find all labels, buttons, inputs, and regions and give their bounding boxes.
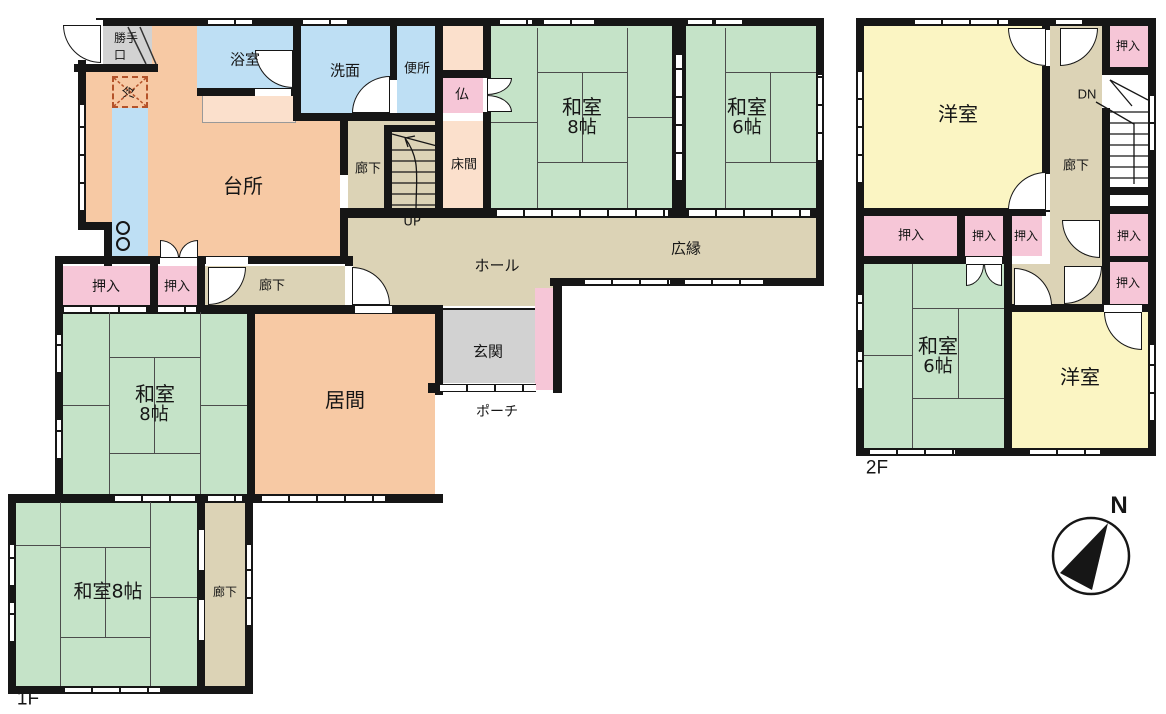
wall [1102,67,1156,75]
tatami-line [63,405,109,406]
room-label-tokonoma: 床間 [451,159,477,172]
label-closet: 押入 [92,280,120,294]
tatami-line [200,312,201,494]
label-closet: 押入 [1117,230,1141,242]
room-label-kitchen: 台所 [223,176,263,196]
floor-label-2f: 2F [866,459,888,478]
door-opening [355,306,392,313]
tatami-line [200,405,247,406]
window [9,603,15,641]
room-label-living: 居間 [325,390,365,410]
window [857,72,863,182]
wall [247,305,255,502]
wall [197,494,205,694]
window [817,75,823,160]
label-closet: 押入 [972,230,996,242]
room-label-toilet: 便所 [404,63,430,76]
label-corridor-bottom: 廊下 [213,586,237,598]
wall [1102,18,1110,73]
wall [55,258,63,502]
wall [1102,256,1156,262]
wall [553,282,562,393]
wall [293,113,443,121]
tatami-line [109,312,110,494]
stove-burner-icon [116,221,130,235]
compass-north-label: N [1110,494,1127,518]
window [857,295,863,330]
room-label-western-top: 洋室 [938,104,978,124]
tatami-line [491,122,537,123]
tatami-line [958,308,959,398]
sliding-door [199,600,204,640]
label-refrigerator: 冷 [124,85,137,98]
room-label-washitsu8-mid: 和室 [135,384,175,404]
window [65,687,160,693]
tatami-line [60,637,150,638]
wall [483,18,491,215]
kitchen-counter [112,108,148,258]
wall [1102,206,1156,214]
wall [293,18,301,121]
door-opening [206,257,248,264]
bath-counter [203,96,295,122]
wall [74,64,158,72]
label-stairs-up: UP [403,216,420,229]
label-veranda: 広縁 [671,242,701,257]
sliding-door [497,209,668,217]
room-label-altar: 仏 [455,88,469,102]
wall [1102,187,1156,195]
room-label-back-entry: 勝手 [114,32,138,44]
window [1056,19,1084,25]
size-label-washitsu6-top: 6帖 [732,119,761,137]
window [56,420,62,458]
window [208,19,252,25]
wall [1102,194,1110,304]
window [115,495,195,502]
room-label-washroom: 洗面 [330,64,360,79]
tatami-line [770,72,771,162]
wall [8,494,16,694]
wall [96,18,824,26]
label-corridor-mid: 廊下 [259,280,285,293]
window [915,19,1008,25]
sliding-door [64,306,148,313]
label-porch: ポーチ [476,405,518,419]
window [246,545,252,625]
compass-icon [1053,518,1129,594]
tatami-line [109,453,200,454]
wall [1102,108,1110,194]
window [857,352,863,388]
label-closet: 押入 [1116,40,1140,52]
size-label-washitsu6-2f: 6帖 [923,358,952,376]
window [56,335,62,372]
tatami-line [864,355,912,356]
wall [428,383,440,393]
door-opening [208,495,242,502]
room-label-western-bottom: 洋室 [1060,367,1100,387]
label-stairs-down: DN [1078,88,1097,101]
tatami-line [16,545,60,546]
room-label-bath: 浴室 [230,53,260,68]
label-corridor-2f: 廊下 [1063,160,1089,173]
sliding-door [675,55,683,180]
wall [384,125,443,132]
window [1030,449,1100,455]
door-opening [966,257,1002,264]
window [1149,345,1155,420]
tatami-line [912,264,913,448]
tatami-line [150,502,151,686]
floor-plan: 勝手 口 冷 浴室 洗面 便所 仏 台所 床間 廊下 UP 和室 8帖 和室 6… [0,0,1166,714]
wall [435,305,443,395]
size-label-washitsu8-top: 8帖 [567,119,596,137]
window [79,105,85,210]
window [1149,95,1155,150]
wall [1004,208,1012,456]
sliding-door [158,306,196,313]
tatami-line [537,28,538,208]
label-hall: ホール [474,259,519,274]
floor-label-1f: 1F [17,690,39,709]
wall-thin [443,308,535,310]
window [688,19,712,25]
label-closet: 押入 [1014,230,1038,242]
sliding-door [689,209,810,217]
wall [384,125,392,217]
label-closet: 押入 [164,281,190,294]
tatami-line [912,398,1004,399]
window [685,279,763,285]
window [716,19,742,25]
window [9,545,15,585]
stove-burner-icon [116,237,130,251]
window [262,495,385,502]
door-opening [1104,305,1142,312]
tatami-line [627,117,672,118]
entrance-sliding-door [440,384,536,392]
tatami-line [627,28,628,208]
tatami-line [537,162,627,163]
room-label-washitsu8-bottom: 和室8帖 [73,583,142,602]
label-closet: 押入 [1116,277,1140,289]
window [585,279,670,285]
label-closet: 押入 [898,230,924,243]
window [544,19,594,25]
building-notch [60,230,104,258]
room-label-genkan: 玄関 [473,345,503,360]
label-corridor-stairs: 廊下 [355,163,381,176]
window [870,449,955,455]
room-label-washitsu6-2f: 和室 [918,336,958,356]
tatami-line [725,162,816,163]
window [303,19,347,25]
tatami-line [150,597,197,598]
wall [435,18,443,215]
door-leaf [390,80,397,113]
room-label-washitsu6-top: 和室 [727,97,767,117]
tatami-line [725,28,726,208]
door-opening [160,257,198,264]
tatami-line [60,502,61,686]
genkan-side-strip [535,288,553,390]
size-label-washitsu8-mid: 8帖 [139,406,168,424]
window [500,19,532,25]
room-label-washitsu8-top: 和室 [562,97,602,117]
door-opening [255,89,291,96]
room-label-back-entry: 口 [114,49,126,61]
wall [78,222,112,230]
sliding-door [199,530,204,570]
